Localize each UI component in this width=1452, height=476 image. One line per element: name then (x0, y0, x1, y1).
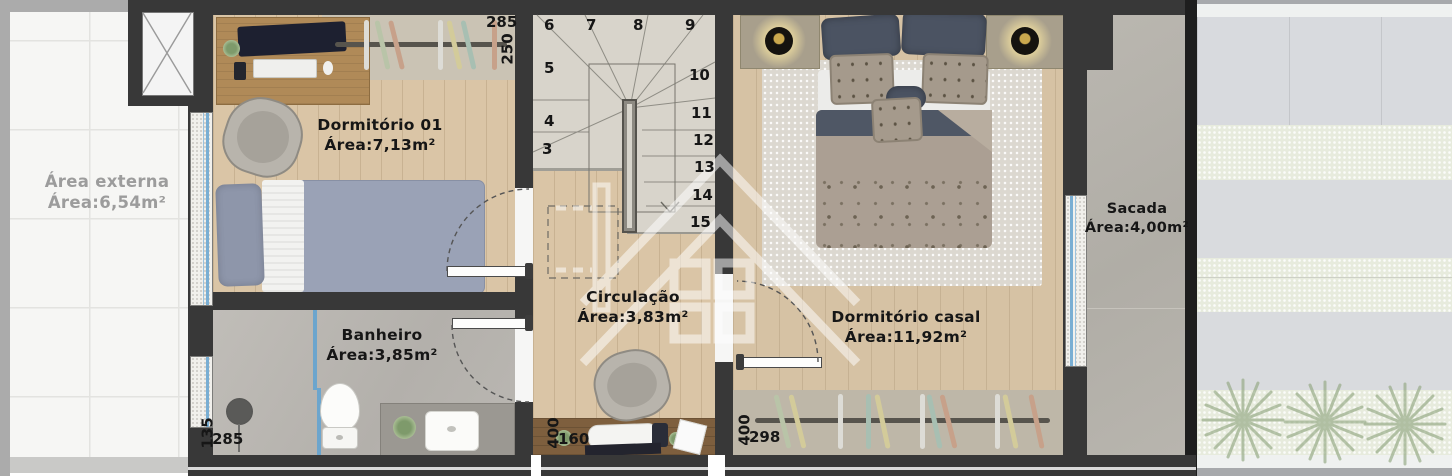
pillow (829, 53, 895, 105)
doorway-dorm01 (515, 188, 533, 272)
shower-head-icon (226, 398, 253, 425)
room-area: Área:11,92m² (831, 328, 980, 348)
dim-banheiro-285: 285 (212, 430, 243, 448)
faucet-icon (447, 426, 456, 432)
room-area: Área:4,00m² (1085, 219, 1189, 238)
paper-icon (673, 419, 707, 455)
wall-lamp-icon (751, 13, 807, 69)
stair-step-9: 9 (685, 16, 695, 34)
room-name: Dormitório 01 (317, 116, 442, 136)
window-glass-line (206, 113, 209, 305)
label-area-externa: Área externa Área:6,54m² (45, 171, 170, 213)
mouse-icon (323, 61, 333, 75)
toilet-button (336, 435, 343, 440)
yucca-plant-icon (1363, 382, 1447, 466)
door-leaf-banheiro (452, 318, 532, 329)
duvet-floral-pattern (816, 172, 992, 248)
sacada-wall-right (1185, 0, 1197, 476)
pillow (901, 10, 987, 58)
sacada-joint-line (1087, 308, 1185, 309)
outdoor-left-border (0, 0, 10, 476)
toilet (320, 383, 360, 449)
desk (216, 17, 370, 105)
bed-sheet-fold (262, 180, 304, 292)
outdoor-walk-top (1197, 4, 1452, 17)
stair-step-8: 8 (633, 16, 643, 34)
floor-plan: Área externa Área:6,54m² Dormitório 01 Á… (0, 0, 1452, 476)
stair-floor-upper (533, 12, 715, 171)
clothes-hanger-icon (438, 20, 443, 70)
wall-bottom-2 (541, 455, 708, 476)
shower-glass (313, 310, 317, 390)
label-dormitorio01: Dormitório 01 Área:7,13m² (317, 116, 442, 156)
yucca-plant-icon (1201, 378, 1285, 462)
yucca-plant-icon (1283, 380, 1367, 464)
stair-step-4: 4 (544, 112, 554, 130)
dim-circ-160: 160 (558, 430, 589, 448)
door-leaf-casal (737, 357, 822, 368)
clothes-hanger-icon (866, 394, 871, 449)
room-area: Área:3,83m² (577, 308, 688, 328)
monitor-icon (237, 21, 346, 57)
stair-step-6: 6 (544, 16, 554, 34)
label-circulacao: Circulação Área:3,83m² (577, 288, 688, 328)
vanity-counter (380, 403, 515, 457)
stair-step-13: 13 (694, 158, 715, 176)
window-glass-line (1070, 196, 1073, 366)
window-casal-sacada (1065, 195, 1087, 367)
shaft-void (142, 12, 194, 96)
window-glass-line (1075, 196, 1076, 366)
double-bed (814, 12, 994, 248)
stair-step-5: 5 (544, 59, 554, 77)
room-area: Área:7,13m² (317, 136, 442, 156)
wall-lamp-icon (997, 13, 1053, 69)
window-dormitorio01 (190, 112, 213, 306)
doorway-banheiro (515, 324, 533, 402)
room-name: Sacada (1085, 200, 1189, 219)
stair-step-3: 3 (542, 140, 552, 158)
outdoor-bottom-line (1197, 468, 1452, 476)
clothes-hanger-icon (920, 394, 925, 449)
door-leaf-dormitorio01 (447, 266, 532, 277)
stair-step-14: 14 (692, 186, 713, 204)
wall-bottom-1 (188, 455, 531, 476)
pillow (871, 97, 923, 144)
grass-band-2 (1197, 258, 1452, 312)
dim-casal-298: 298 (749, 428, 780, 446)
sacada-pillar (1087, 0, 1113, 70)
pillow (921, 53, 989, 105)
wall-dorm-bath (200, 292, 533, 310)
clothes-hanger-icon (995, 394, 1000, 449)
room-name: Banheiro (326, 326, 437, 346)
area-externa-curb (10, 457, 188, 473)
room-name: Circulação (577, 288, 688, 308)
closet-rail (335, 42, 507, 47)
bed-pillow (215, 183, 265, 287)
grass-band-divider (1197, 277, 1452, 278)
counter-plant-icon (393, 416, 416, 439)
label-sacada: Sacada Área:4,00m² (1085, 200, 1189, 237)
stair-step-10: 10 (689, 66, 710, 84)
label-banheiro: Banheiro Área:3,85m² (326, 326, 437, 366)
wall-top (128, 0, 1197, 15)
grass-band-1 (1197, 125, 1452, 180)
dim-dorm01-250: 250 (499, 33, 517, 64)
room-name: Área externa (45, 171, 170, 192)
phone-icon (234, 62, 246, 80)
room-name: Dormitório casal (831, 308, 980, 328)
room-area: Área:3,85m² (326, 346, 437, 366)
window-glass-line (203, 113, 204, 305)
keyboard-icon (253, 59, 317, 78)
stair-step-15: 15 (690, 213, 711, 231)
dim-dorm01-285: 285 (486, 13, 517, 31)
label-dormitorio-casal: Dormitório casal Área:11,92m² (831, 308, 980, 348)
clothes-hanger-icon (364, 20, 369, 70)
stair-step-12: 12 (693, 131, 714, 149)
single-bed (213, 177, 485, 295)
stair-step-7: 7 (586, 16, 596, 34)
gray-band-1 (1197, 180, 1452, 258)
outdoor-tiles (1197, 17, 1452, 125)
wall-circ-casal (715, 12, 733, 455)
toilet-bowl (320, 383, 360, 431)
doorway-casal (715, 274, 733, 362)
stair-step-11: 11 (691, 104, 712, 122)
room-area: Área:6,54m² (45, 192, 170, 213)
wall-bottom-3 (725, 455, 1196, 476)
outdoor-top-border (0, 0, 130, 12)
desk-plant-icon (223, 40, 240, 57)
clothes-hanger-icon (838, 394, 843, 449)
